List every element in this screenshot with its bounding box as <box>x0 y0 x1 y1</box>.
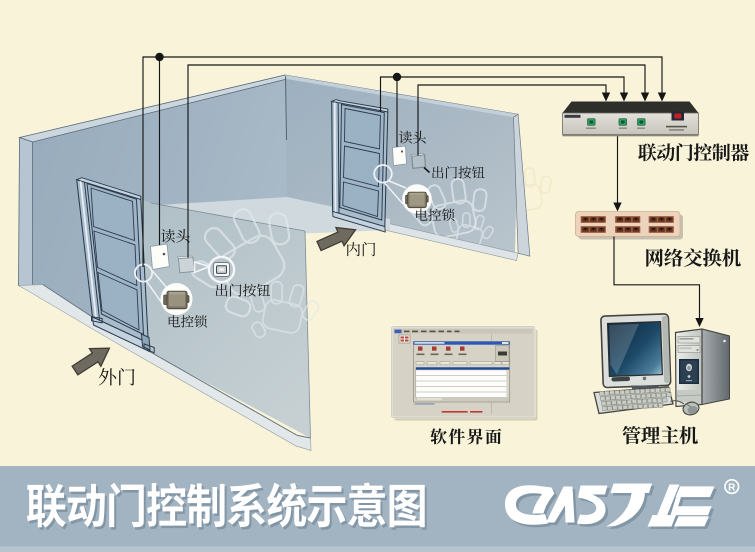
svg-text:R: R <box>728 482 736 493</box>
